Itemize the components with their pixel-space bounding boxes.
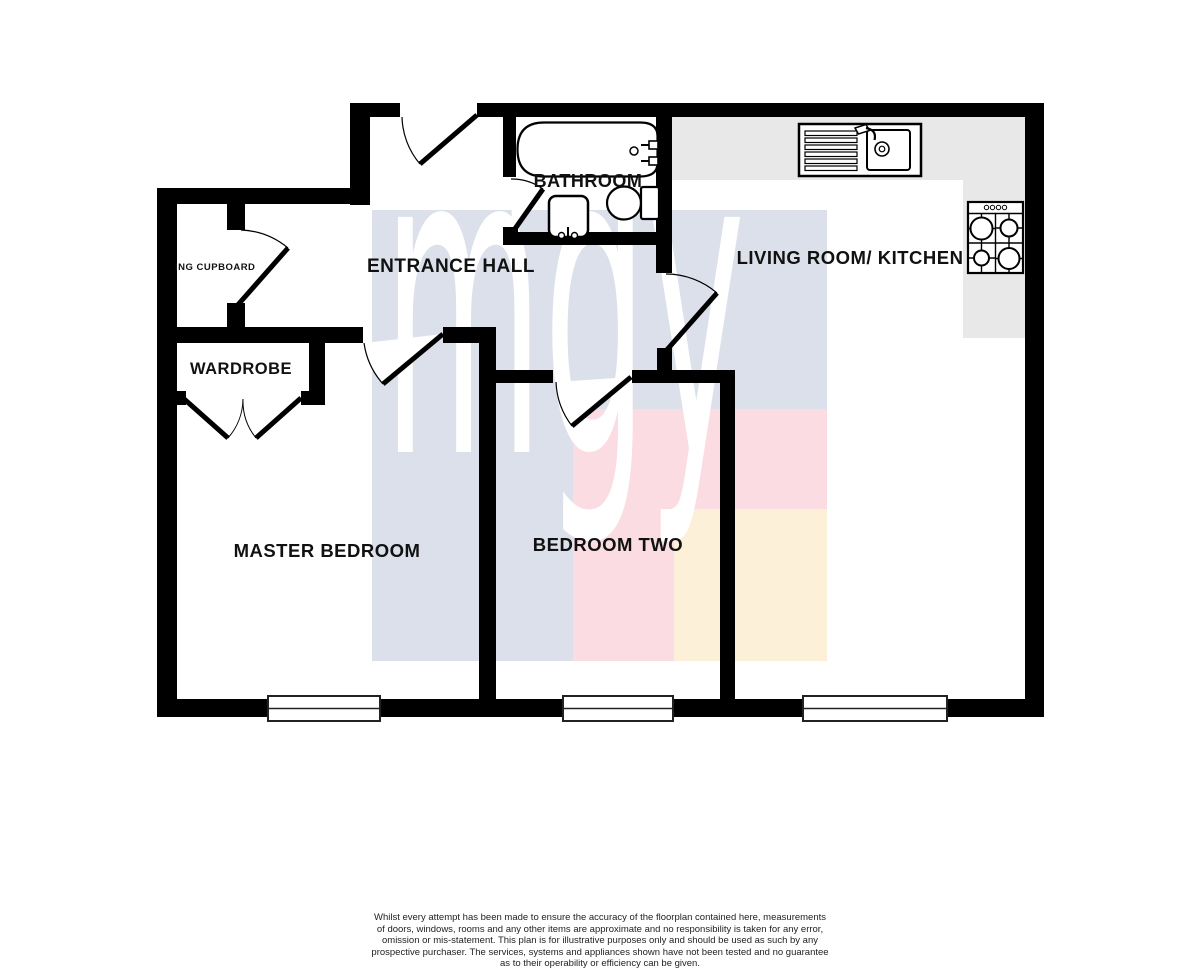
label-bathroom: BATHROOM (534, 171, 643, 191)
wardrobe-right-post (301, 391, 325, 405)
bathtub-icon (518, 123, 659, 177)
hob-icon (968, 202, 1023, 273)
wardrobe-double-doors (183, 398, 301, 438)
wall-bottom-c (673, 699, 803, 717)
bedroom2-top-wall-left (496, 370, 553, 383)
window-master-bedroom (268, 696, 380, 721)
living-door-stub (657, 348, 672, 372)
toilet-icon (607, 187, 659, 220)
disclaimer-line: prospective purchaser. The services, sys… (0, 947, 1200, 959)
label-wardrobe: WARDROBE (190, 360, 292, 378)
floorplan-svg: mgy (0, 0, 1200, 971)
disclaimer-line: as to their operability or efficiency ca… (0, 958, 1200, 970)
floorplan-page: mgy (0, 0, 1200, 971)
disclaimer-line: omission or mis-statement. This plan is … (0, 935, 1200, 947)
bath-drain (630, 147, 638, 155)
wall-bottom-d (947, 699, 1044, 717)
label-airing-cupboard: ING CUPBOARD (175, 262, 255, 273)
wall-connector (350, 103, 370, 205)
door-swing-icon (243, 399, 256, 438)
wall-master-bedroom2 (479, 327, 496, 699)
wardrobe-right-wall (309, 341, 325, 393)
bath-tap (649, 141, 658, 149)
label-entrance-hall: ENTRANCE HALL (367, 256, 535, 277)
bedroom2-right-wall (720, 383, 735, 699)
cupboard-post-top (227, 204, 245, 230)
wall-top-left-outer (157, 188, 370, 204)
disclaimer: Whilst every attempt has been made to en… (0, 912, 1200, 971)
bedroom2-top-wall-right (632, 370, 735, 383)
window-living-room (803, 696, 947, 721)
windows (268, 696, 947, 721)
label-bedroom-two: BEDROOM TWO (533, 534, 683, 555)
wall-above-wardrobe (157, 327, 363, 343)
wall-left (157, 188, 177, 717)
disclaimer-line: Whilst every attempt has been made to en… (0, 912, 1200, 924)
label-living-kitchen: LIVING ROOM/ KITCHEN (737, 247, 964, 268)
kitchen-sink-icon (799, 124, 921, 176)
label-master-bedroom: MASTER BEDROOM (234, 540, 421, 561)
bathroom-left-wall (503, 117, 516, 177)
door-leaf (256, 398, 301, 438)
door-swing-icon (228, 399, 243, 438)
bath-tap (649, 157, 658, 165)
wall-right (1025, 103, 1044, 717)
wall-bottom-b (380, 699, 563, 717)
window-bedroom-two (563, 696, 673, 721)
door-leaf (183, 398, 228, 438)
wash-basin-icon (549, 196, 588, 239)
wall-top-main (477, 103, 1044, 117)
disclaimer-line: of doors, windows, rooms and any other i… (0, 924, 1200, 936)
